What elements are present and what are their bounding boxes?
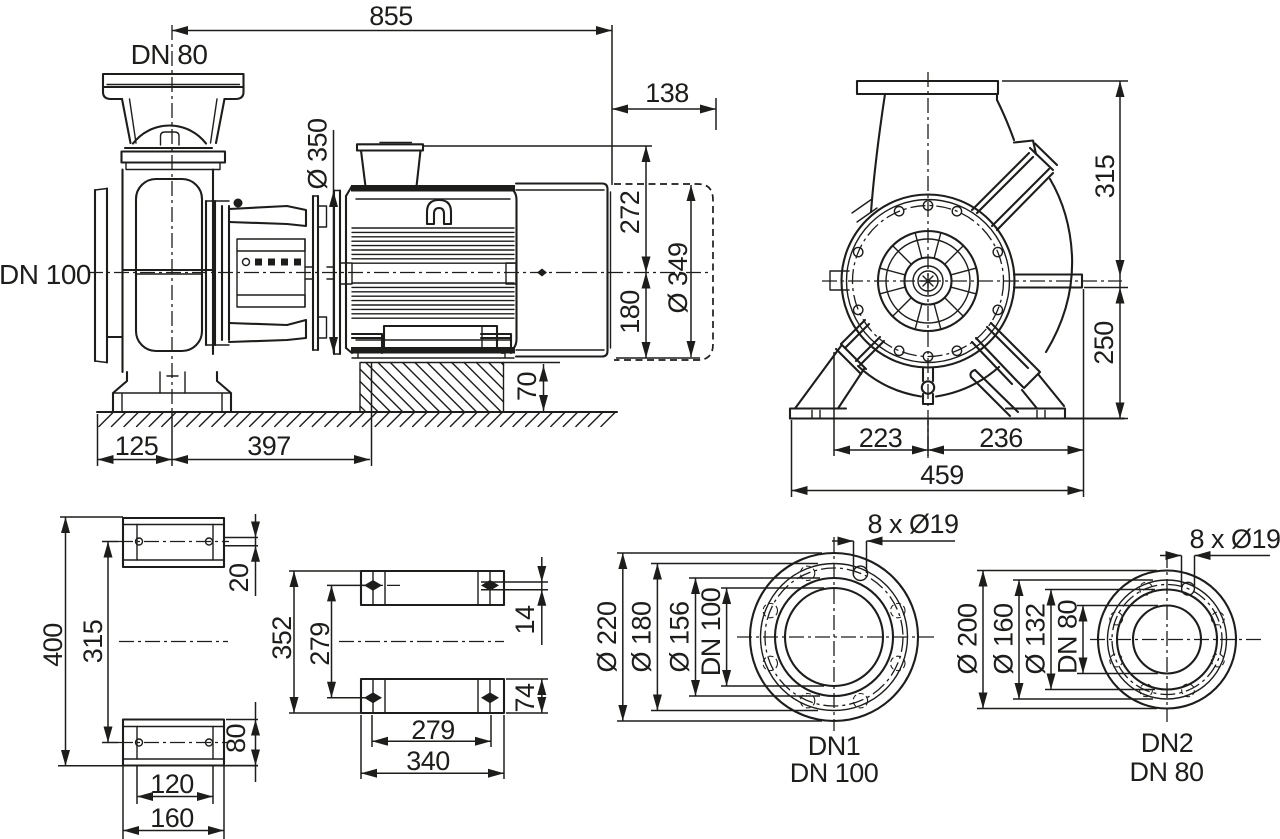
svg-text:20: 20	[224, 563, 254, 592]
svg-text:125: 125	[115, 431, 159, 461]
svg-text:8 x Ø19: 8 x Ø19	[1189, 524, 1280, 554]
svg-text:352: 352	[267, 616, 297, 660]
svg-text:DN 80: DN 80	[131, 39, 208, 70]
svg-text:279: 279	[411, 715, 455, 745]
svg-text:Ø 132: Ø 132	[1021, 603, 1051, 674]
svg-text:DN 100: DN 100	[790, 758, 879, 788]
svg-text:120: 120	[150, 769, 194, 799]
svg-text:DN1: DN1	[808, 731, 861, 761]
svg-text:397: 397	[247, 431, 291, 461]
svg-text:Ø 180: Ø 180	[627, 601, 657, 672]
svg-text:70: 70	[512, 372, 542, 401]
svg-text:400: 400	[38, 623, 68, 667]
svg-text:Ø 349: Ø 349	[663, 242, 693, 313]
svg-text:Ø 200: Ø 200	[953, 603, 983, 674]
svg-text:DN 100: DN 100	[696, 588, 726, 677]
svg-text:DN 80: DN 80	[1129, 757, 1203, 787]
svg-text:Ø 350: Ø 350	[303, 118, 333, 189]
svg-text:80: 80	[221, 724, 251, 753]
svg-text:8 x Ø19: 8 x Ø19	[867, 509, 958, 539]
svg-text:14: 14	[510, 605, 540, 635]
svg-text:138: 138	[645, 78, 689, 108]
svg-text:Ø 220: Ø 220	[592, 601, 622, 672]
svg-text:315: 315	[78, 620, 108, 664]
svg-text:180: 180	[615, 290, 645, 334]
svg-text:223: 223	[859, 423, 903, 453]
svg-text:DN2: DN2	[1141, 728, 1194, 758]
svg-text:DN 80: DN 80	[1053, 600, 1083, 674]
svg-text:272: 272	[615, 191, 645, 235]
svg-text:340: 340	[406, 746, 450, 776]
svg-text:Ø 160: Ø 160	[989, 603, 1019, 674]
svg-text:315: 315	[1090, 155, 1120, 199]
svg-text:74: 74	[510, 683, 540, 713]
svg-text:160: 160	[150, 803, 194, 833]
svg-text:250: 250	[1089, 321, 1119, 365]
svg-text:DN 100: DN 100	[0, 259, 91, 290]
svg-text:236: 236	[979, 423, 1023, 453]
svg-text:459: 459	[920, 460, 964, 490]
svg-text:855: 855	[369, 1, 413, 31]
svg-text:279: 279	[305, 622, 335, 666]
svg-text:Ø 156: Ø 156	[665, 601, 695, 672]
